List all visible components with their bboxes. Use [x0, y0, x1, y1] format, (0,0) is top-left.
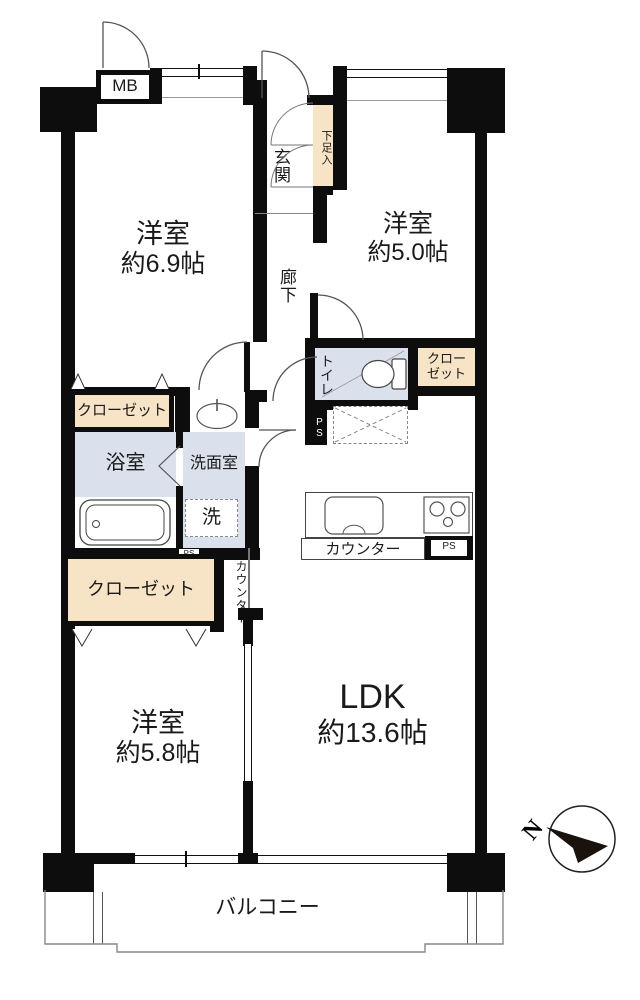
closet69-fold-marks	[71, 374, 169, 389]
bathtub-icon	[80, 500, 170, 545]
washbasin-icon	[197, 399, 237, 429]
bathroom-folding-door	[159, 446, 180, 486]
plan-linework: N	[0, 0, 640, 1000]
toilet-icon	[322, 351, 406, 397]
balcony-outline	[45, 890, 503, 952]
stove-icon	[424, 497, 469, 533]
washroom-door-arc	[259, 430, 296, 467]
kitchen-sink-icon	[325, 497, 383, 534]
mb-door-arc	[103, 22, 149, 68]
closet58-fold-marks	[72, 629, 206, 646]
bedroom50-door-arc	[318, 295, 363, 340]
entrance-door-arc	[262, 51, 309, 98]
refrigerator-cross	[335, 408, 406, 442]
toilet-door-arc	[273, 357, 317, 401]
compass-north-label: N	[518, 815, 549, 846]
floor-plan: MB 下足入 トイレ クロー ゼット PS クローゼット 浴室 洗面室	[0, 0, 640, 1000]
compass-icon: N	[518, 806, 615, 872]
bedroom69-door-arc	[199, 342, 247, 390]
shoe-cabinet-door-arcs	[271, 103, 313, 187]
